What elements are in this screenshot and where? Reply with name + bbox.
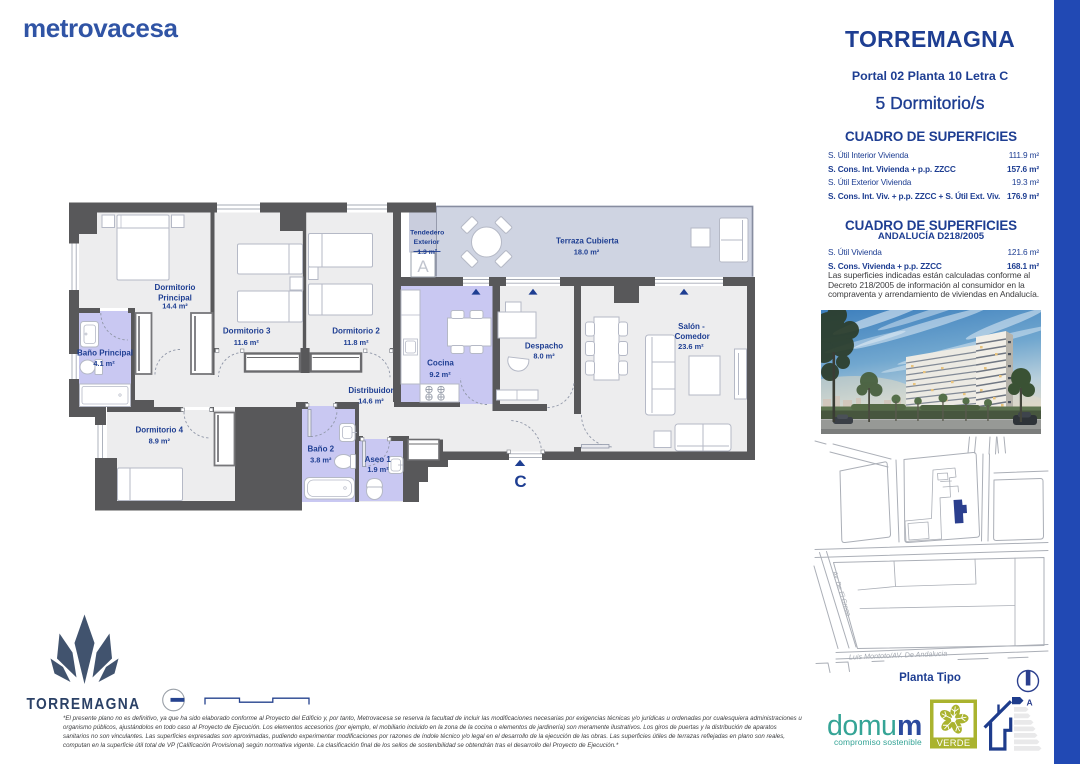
- svg-text:Distribuidor: Distribuidor: [348, 386, 393, 395]
- svg-text:18.0 m²: 18.0 m²: [574, 248, 600, 257]
- svg-text:Dormitorio 2: Dormitorio 2: [332, 327, 380, 336]
- svg-text:Luis Montoto/AV. De Andalucia: Luis Montoto/AV. De Andalucia: [849, 649, 948, 662]
- svg-text:compromiso sostenible: compromiso sostenible: [834, 737, 922, 747]
- svg-text:11.6 m²: 11.6 m²: [234, 338, 260, 347]
- svg-text:A: A: [417, 257, 429, 276]
- svg-text:Aseo 1: Aseo 1: [365, 455, 392, 464]
- svg-text:8.9 m²: 8.9 m²: [149, 437, 171, 446]
- svg-text:4.1 m²: 4.1 m²: [93, 359, 115, 368]
- svg-text:A: A: [1027, 698, 1033, 708]
- svg-text:1.9 m²: 1.9 m²: [367, 465, 389, 474]
- svg-text:Tendedero: Tendedero: [410, 230, 444, 237]
- svg-text:Comedor: Comedor: [675, 332, 710, 341]
- svg-text:1.3 m²: 1.3 m²: [417, 249, 437, 256]
- svg-text:Dormitorio 3: Dormitorio 3: [223, 327, 271, 336]
- svg-text:Baño 2: Baño 2: [307, 445, 334, 454]
- svg-text:Cocina: Cocina: [427, 359, 454, 368]
- svg-text:3.8 m²: 3.8 m²: [310, 456, 332, 465]
- svg-text:Av. De El Greco: Av. De El Greco: [830, 570, 851, 618]
- svg-text:VERDE: VERDE: [937, 737, 971, 748]
- svg-text:Baño Principal: Baño Principal: [77, 349, 133, 358]
- svg-text:11.8 m²: 11.8 m²: [343, 338, 369, 347]
- svg-text:Terraza Cubierta: Terraza Cubierta: [556, 237, 619, 246]
- svg-text:C: C: [514, 472, 526, 491]
- svg-text:Dormitorio: Dormitorio: [155, 283, 196, 292]
- svg-text:Despacho: Despacho: [525, 342, 563, 351]
- svg-text:Salón -: Salón -: [678, 322, 705, 331]
- svg-text:14.6 m²: 14.6 m²: [358, 397, 384, 406]
- svg-text:14.4 m²: 14.4 m²: [162, 302, 188, 311]
- svg-text:Exterior: Exterior: [414, 239, 440, 246]
- svg-text:Dormitorio 4: Dormitorio 4: [136, 426, 184, 435]
- svg-text:TORREMAGNA: TORREMAGNA: [27, 696, 141, 713]
- svg-text:8.0 m²: 8.0 m²: [533, 352, 555, 361]
- svg-text:23.6 m²: 23.6 m²: [678, 342, 704, 351]
- svg-text:9.2 m²: 9.2 m²: [429, 370, 451, 379]
